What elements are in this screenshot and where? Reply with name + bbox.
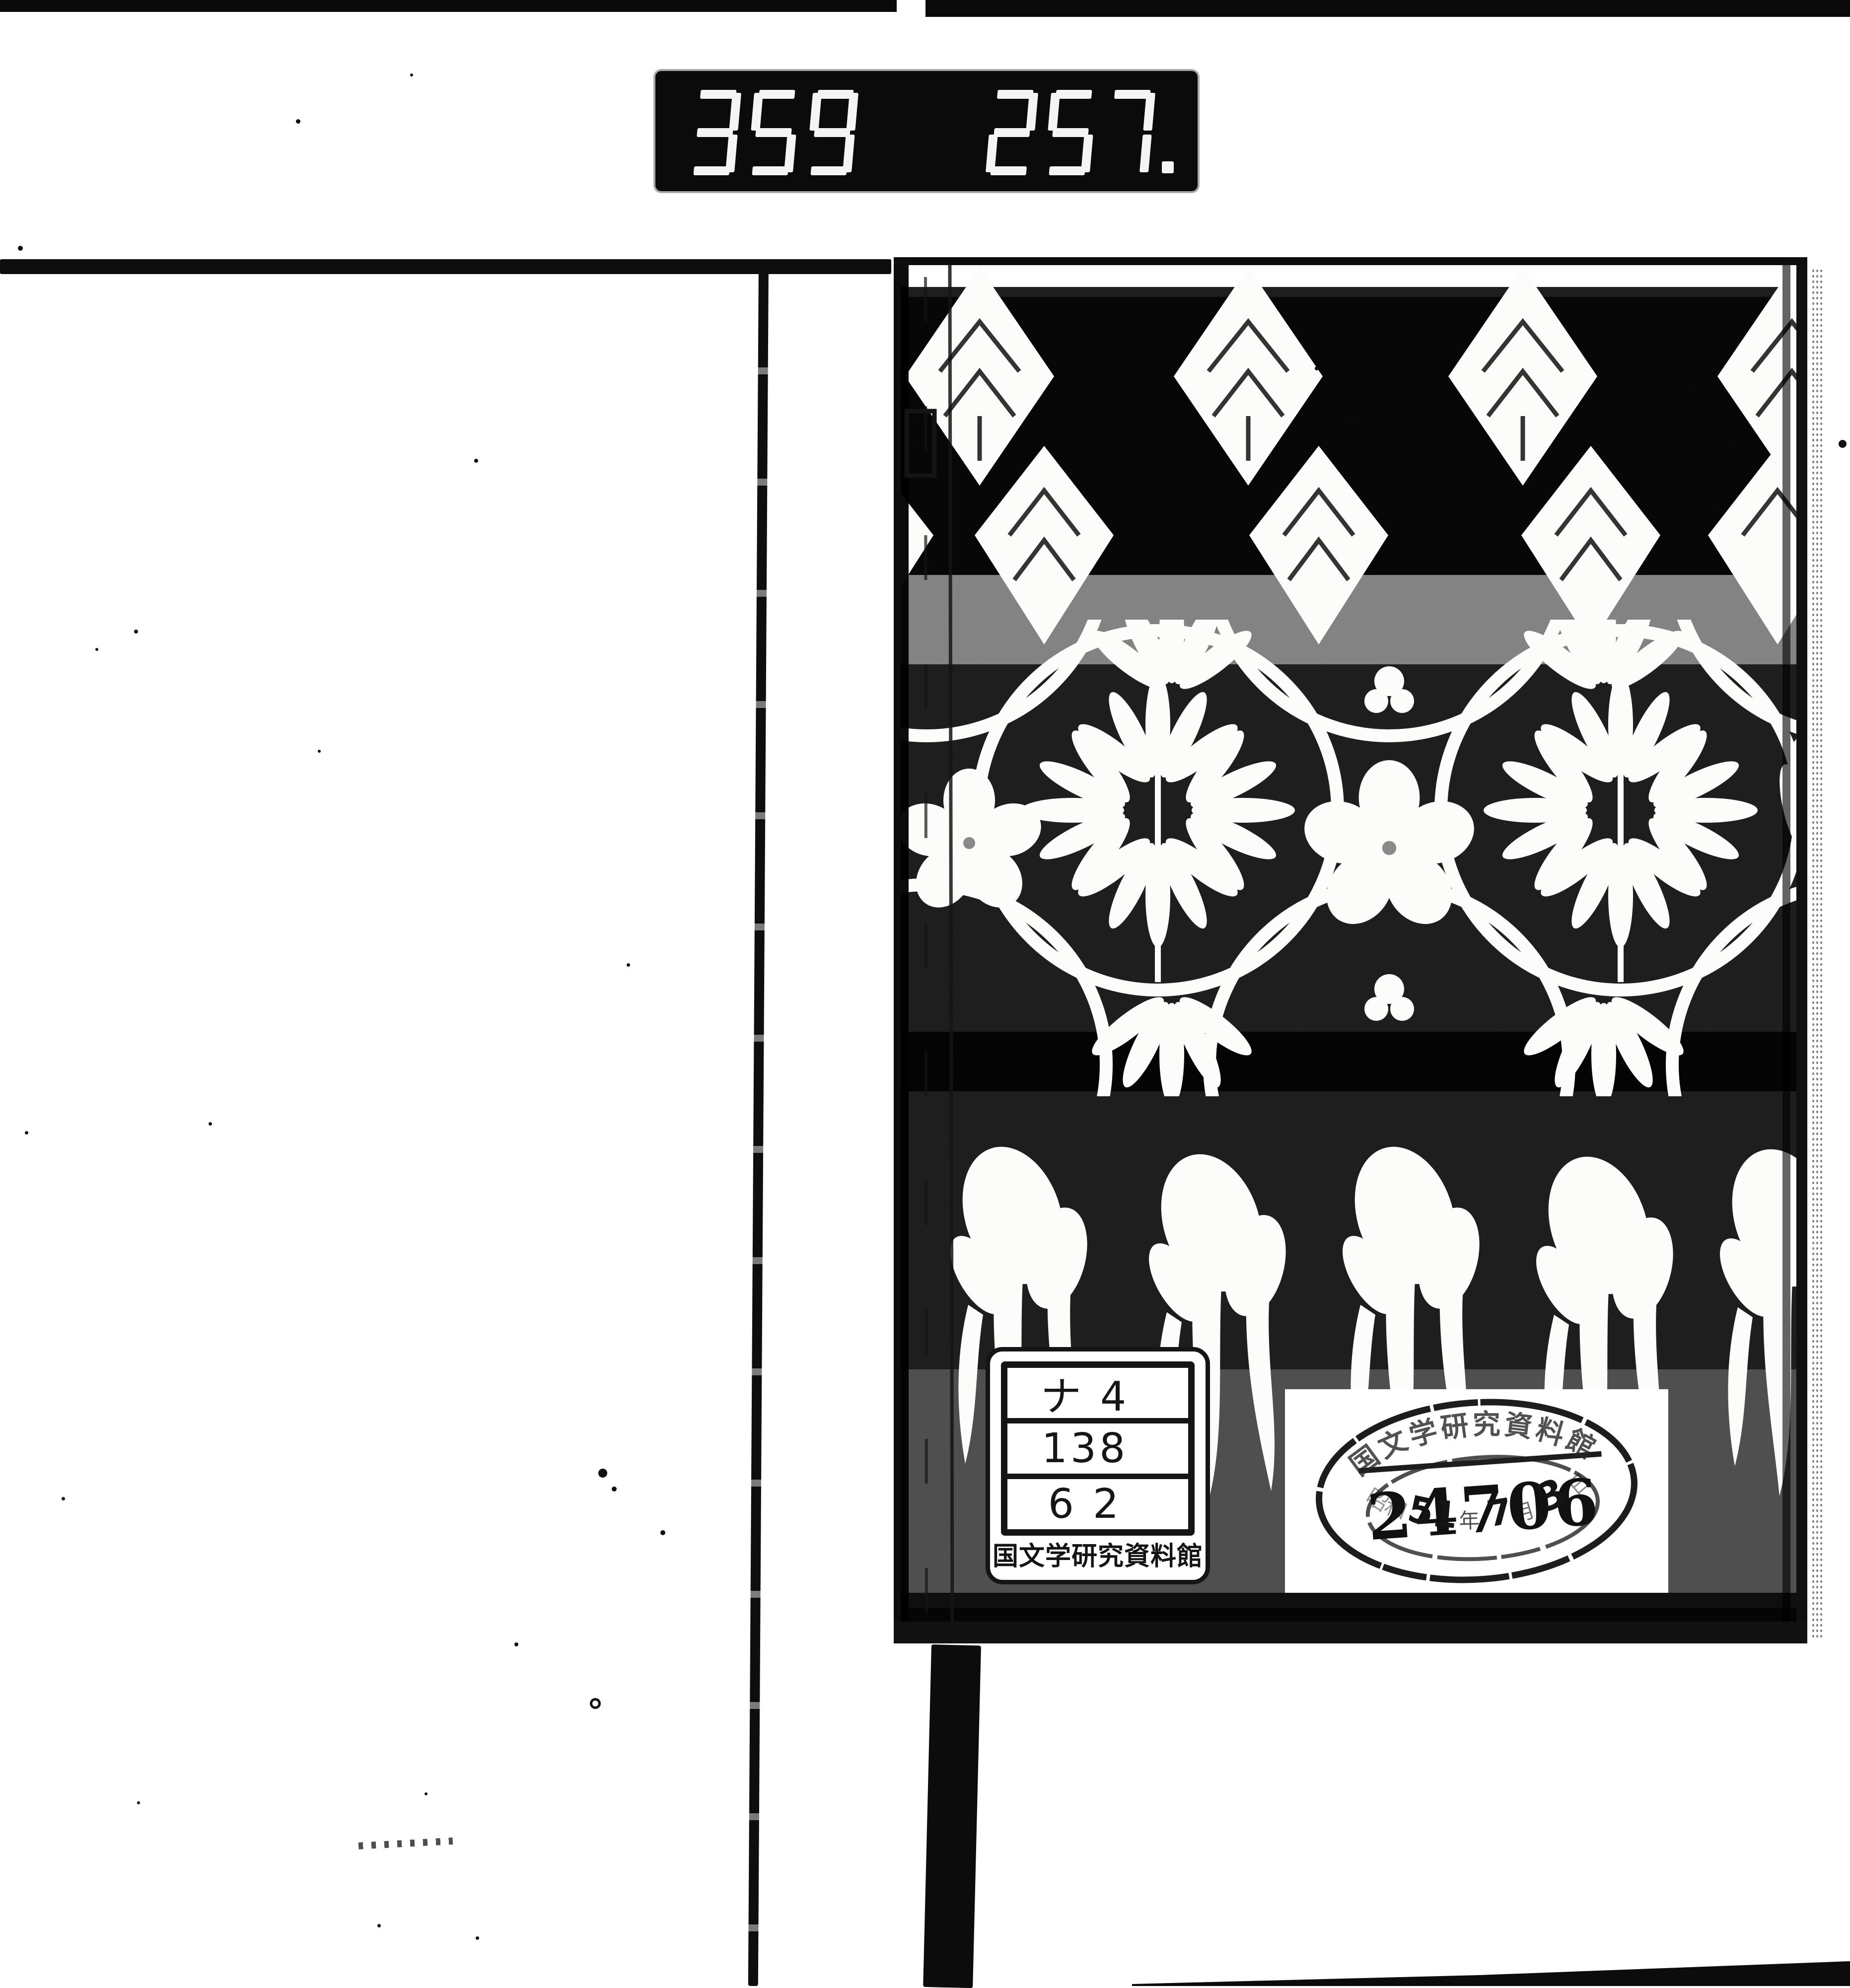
dust-speck: [476, 1936, 479, 1940]
dust-speck: [25, 1131, 28, 1135]
call-number-row-1: ナ 4: [1007, 1368, 1188, 1423]
dust-speck: [18, 246, 23, 251]
dust-speck: [612, 1487, 617, 1491]
spine-shadow-bar: [923, 1644, 981, 1988]
dust-speck: [627, 963, 630, 967]
accession-stamp: 国文学研究資料館 24706 昭和 51 年 7 月 3 日: [1285, 1389, 1668, 1593]
dust-speck: [1839, 440, 1847, 448]
dust-speck: [514, 1642, 518, 1646]
dust-speck: [660, 1530, 665, 1535]
dust-speck: [425, 1792, 427, 1795]
label-institution-name: 国文学研究資料館: [1001, 1536, 1195, 1571]
dust-speck: [137, 1801, 140, 1804]
pencil-scribble-mark: [356, 1838, 453, 1849]
counter-digits-right: [989, 90, 1176, 175]
dust-speck: [62, 1497, 65, 1500]
dust-speck: [209, 1122, 212, 1126]
dust-speck: [95, 648, 98, 651]
dust-speck: [1315, 366, 1319, 370]
film-edge-bar-left: [0, 0, 897, 12]
call-number-table: ナ 4 138 6 2: [1001, 1361, 1195, 1536]
dust-speck: [598, 1469, 607, 1478]
counter-digits-left: [692, 90, 868, 175]
microfilm-scan-page: { "page": { "kind": "microfilm scan of a…: [0, 0, 1850, 1986]
right-margin-speckle: [1811, 268, 1824, 1638]
call-number-value-1: ナ 4: [1041, 1363, 1129, 1422]
dust-speck: [410, 73, 413, 76]
microfilm-frame-counter: [655, 71, 1198, 191]
dust-speck: [318, 750, 321, 753]
bottom-shadow-wedge: [1132, 1956, 1850, 1986]
call-number-value-2: 138: [1042, 1425, 1129, 1472]
page-vertical-rule: [748, 263, 769, 1986]
page-top-rule: [0, 259, 891, 274]
dust-speck: [377, 1924, 381, 1927]
dust-speck: [590, 1698, 601, 1709]
film-edge-bar-right: [925, 0, 1850, 17]
accession-stamp-patch: 国文学研究資料館 24706 昭和 51 年 7 月 3 日: [1285, 1389, 1668, 1593]
call-number-row-3: 6 2: [1007, 1479, 1188, 1529]
call-number-row-2: 138: [1007, 1423, 1188, 1479]
dust-speck: [474, 459, 478, 463]
dust-speck: [134, 630, 138, 634]
call-number-label: ナ 4 138 6 2 国文学研究資料館: [986, 1347, 1210, 1584]
call-number-value-3: 6 2: [1048, 1481, 1122, 1528]
dust-speck: [296, 119, 300, 124]
